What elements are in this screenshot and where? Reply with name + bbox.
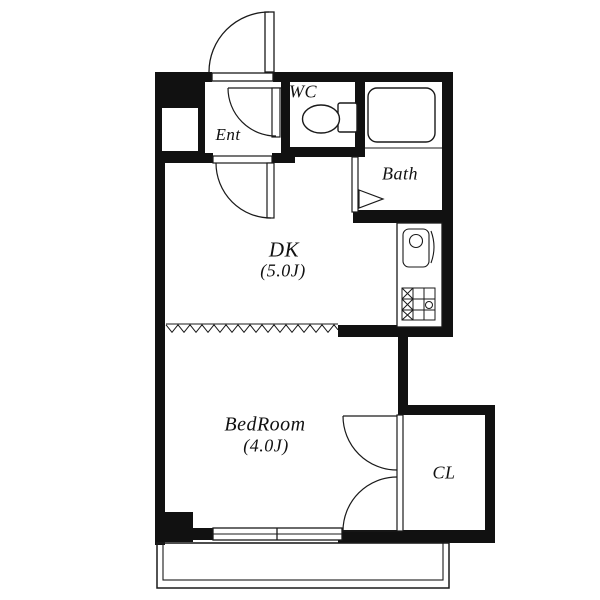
closet-door-arc-bottom	[343, 477, 397, 531]
room-area-dk: (5.0J)	[260, 261, 305, 282]
room-label-bedroom: BedRoom	[224, 414, 305, 437]
toilet-tank	[338, 103, 357, 132]
room-label-cl: CL	[432, 463, 455, 484]
balcony	[157, 543, 449, 588]
dk-threshold	[213, 156, 272, 163]
kitchen-faucet	[410, 235, 423, 248]
sliding-window	[213, 528, 342, 540]
dk-door-arc	[216, 163, 271, 218]
room-label-wc: WC	[289, 82, 317, 103]
entrance-door	[209, 12, 274, 81]
gas-stove	[402, 288, 435, 320]
bath-door-frame	[352, 157, 358, 212]
closet-double-door	[343, 415, 403, 531]
room-area-bedroom: (4.0J)	[243, 436, 288, 457]
bath-fixtures	[365, 88, 442, 148]
entrance-sill	[212, 73, 273, 81]
accordion-partition	[166, 324, 338, 332]
room-label-bath: Bath	[382, 164, 418, 185]
dk-door-leaf	[267, 163, 274, 218]
entrance-door-arc	[209, 12, 269, 72]
closet-door-panels	[397, 415, 403, 531]
room-label-dk: DK	[269, 238, 299, 263]
dk-door	[213, 156, 274, 218]
bath-folding-door	[352, 157, 383, 212]
bathtub	[368, 88, 435, 142]
meter-box	[162, 108, 198, 151]
bath-door-triangle	[359, 190, 383, 208]
closet-door-arc-top	[343, 416, 397, 470]
wc-door-leaf	[272, 88, 280, 137]
toilet	[303, 103, 358, 133]
floor-plan: Ent WC Bath DK (5.0J) BedRoom (4.0J) CL	[0, 0, 600, 600]
kitchen	[397, 223, 442, 327]
room-label-ent: Ent	[215, 125, 240, 145]
toilet-bowl	[303, 105, 340, 133]
entrance-door-leaf	[265, 12, 274, 72]
